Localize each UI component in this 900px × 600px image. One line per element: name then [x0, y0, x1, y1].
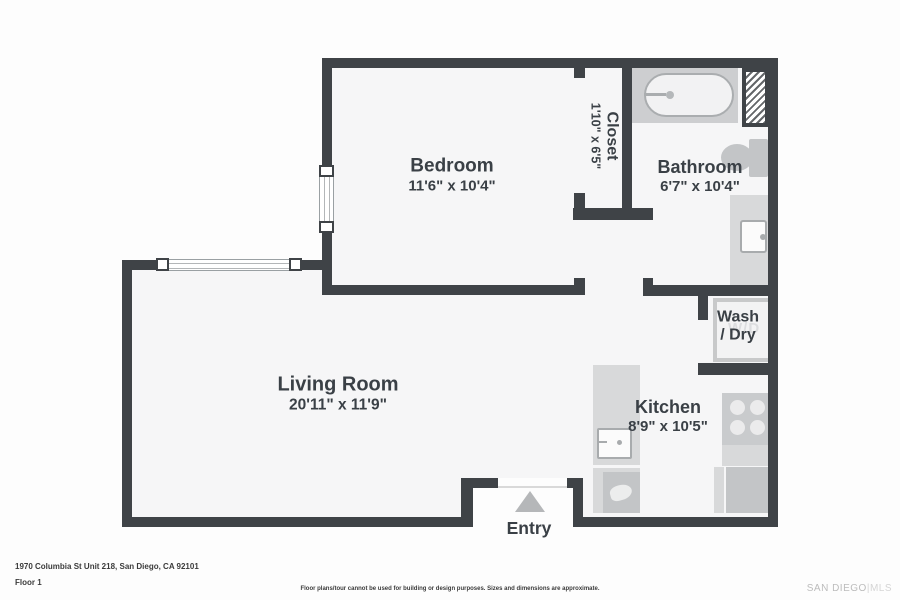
- wall-closet-bottom: [573, 208, 653, 220]
- wash-dry-line1: Wash: [717, 309, 759, 327]
- kitchen-faucet-dot-icon: [617, 440, 622, 445]
- wall-left: [122, 260, 132, 527]
- burner-icon: [750, 400, 765, 415]
- burner-icon: [750, 420, 765, 435]
- wall-top: [322, 58, 778, 68]
- wall-bottom-right: [573, 517, 778, 527]
- window-cap: [156, 258, 169, 271]
- entry-arrow-icon: [515, 491, 545, 512]
- window-cap: [319, 165, 334, 177]
- bathroom-faucet-dot-icon: [760, 234, 766, 240]
- bathroom-label: Bathroom 6'7" x 10'4": [658, 157, 743, 195]
- bedroom-label: Bedroom 11'6" x 10'4": [408, 155, 495, 194]
- shower-hatch-icon: [742, 68, 769, 127]
- wash-dry-line2: / Dry: [717, 327, 759, 345]
- bedroom-dims: 11'6" x 10'4": [408, 177, 495, 194]
- address-text: 1970 Columbia St Unit 218, San Diego, CA…: [15, 562, 199, 571]
- mls-watermark: SAN DIEGO|MLS: [807, 583, 892, 594]
- bedroom-name: Bedroom: [408, 155, 495, 177]
- wall-bedroom-bottom: [322, 285, 585, 295]
- bathtub-faucet-icon: [644, 93, 666, 96]
- kitchen-label: Kitchen 8'9" x 10'5": [628, 397, 708, 435]
- wall-closet-stub-top: [574, 68, 585, 78]
- entry-label: Entry: [507, 518, 552, 538]
- burner-icon: [730, 420, 745, 435]
- living-room-window: [158, 259, 302, 271]
- kitchen-faucet-line-icon: [597, 441, 607, 443]
- fridge-icon: [726, 467, 768, 513]
- window-cap: [289, 258, 302, 271]
- floor-plan: W/D Bedroom 11'6" x: [0, 0, 900, 600]
- wall-right: [768, 58, 778, 527]
- fridge-side-strip: [714, 467, 724, 513]
- disclaimer-text: Floor plans/tour cannot be used for buil…: [0, 586, 900, 592]
- kitchen-dims: 8'9" x 10'5": [628, 418, 708, 435]
- living-room-name: Living Room: [277, 374, 398, 397]
- living-room-label: Living Room 20'11" x 11'9": [277, 374, 398, 415]
- closet-dims: 1'10" x 6'5": [588, 103, 602, 169]
- kitchen-sink-icon: [597, 428, 632, 459]
- wall-washdry-left: [698, 296, 708, 320]
- living-room-dims: 20'11" x 11'9": [277, 397, 398, 415]
- wall-bottom-left: [122, 517, 473, 527]
- closet-name: Closet: [602, 103, 620, 169]
- watermark-secondary: MLS: [870, 583, 892, 594]
- wall-bathroom-bottom: [643, 285, 768, 296]
- wall-bedroom-door-stub: [574, 278, 585, 295]
- kitchen-name: Kitchen: [628, 397, 708, 418]
- kitchen-counter-right: [722, 445, 768, 466]
- bathroom-name: Bathroom: [658, 157, 743, 178]
- window-cap: [319, 221, 334, 233]
- wash-dry-label: Wash / Dry: [717, 309, 759, 346]
- closet-label: Closet 1'10" x 6'5": [588, 103, 621, 169]
- watermark-primary: SAN DIEGO: [807, 583, 867, 594]
- window-glass: [160, 263, 300, 269]
- bathtub-drain-icon: [666, 91, 674, 99]
- burner-icon: [730, 400, 745, 415]
- wall-closet-right: [622, 68, 632, 208]
- bathroom-dims: 6'7" x 10'4": [658, 178, 743, 195]
- entry-door-threshold: [498, 486, 567, 488]
- wall-entry-top-b: [567, 478, 583, 488]
- wall-entry-top-a: [461, 478, 498, 488]
- wall-washdry-bottom: [698, 363, 778, 375]
